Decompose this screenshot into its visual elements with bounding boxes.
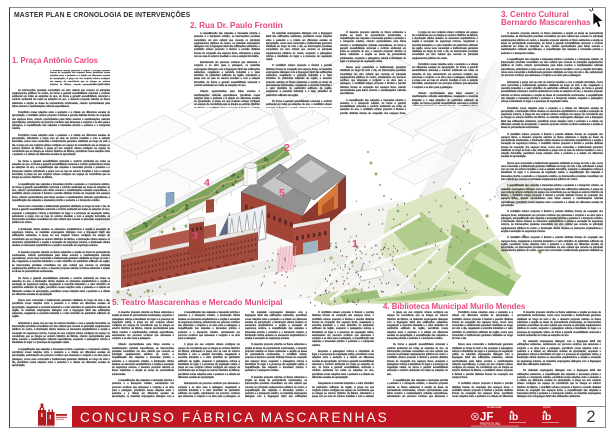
- svg-text:5: 5: [279, 187, 285, 199]
- svg-text:ib: ib: [542, 411, 551, 423]
- svg-text:PREFEITURA: PREFEITURA: [480, 421, 501, 425]
- svg-text:4: 4: [204, 177, 210, 189]
- svg-text:ib: ib: [509, 411, 518, 423]
- svg-text:2: 2: [284, 142, 290, 154]
- svg-text:1: 1: [352, 238, 358, 250]
- svg-text:3: 3: [192, 230, 198, 242]
